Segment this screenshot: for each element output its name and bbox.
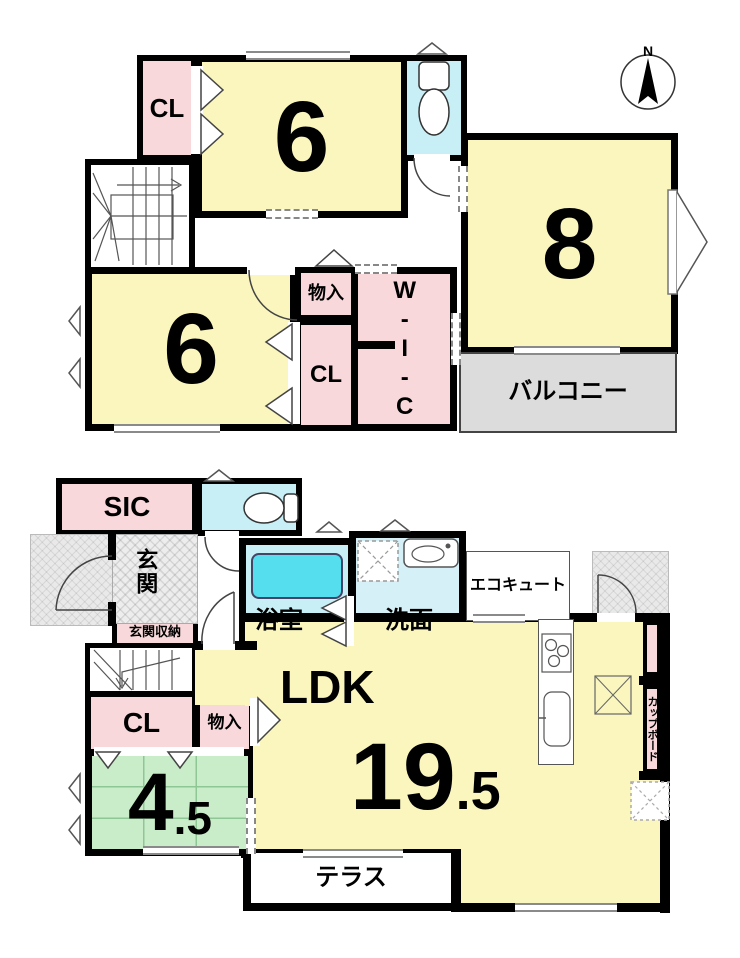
casement-window-icon <box>68 358 81 388</box>
window-room6-top <box>246 51 350 60</box>
closet-1f: CL <box>85 691 198 755</box>
bay-window-icon <box>668 188 710 296</box>
compass-icon: N <box>614 38 684 114</box>
bifold-door-icon <box>314 248 354 268</box>
stove-icon <box>541 633 573 673</box>
storage-2f-label: 物入 <box>308 284 344 304</box>
tatami-room-size-frac: .5 <box>174 798 212 839</box>
bifold-door-icon <box>256 696 282 746</box>
ecocute-unit: エコキュート <box>466 551 570 621</box>
window-room6-left <box>114 424 220 433</box>
bedroom-6-left-size: 6 <box>163 304 219 394</box>
refrigerator-space-icon <box>629 780 671 822</box>
closet-2f-top-label: CL <box>150 94 185 123</box>
window-ldk-terrace <box>303 849 403 858</box>
ldk-size-main: 19 <box>350 735 456 821</box>
door-arc-toilet-1f <box>205 537 239 571</box>
storage-2f: 物入 <box>295 267 357 321</box>
bifold-door-icon <box>318 594 348 648</box>
ldk-label: LDK <box>280 661 375 713</box>
sliding-door-wic-side <box>451 313 461 365</box>
bedroom-8: 8 <box>461 133 678 354</box>
bifold-door-icon <box>264 322 294 426</box>
ldk-room: LDK <box>280 662 375 713</box>
closet-1f-label: CL <box>123 708 160 739</box>
bifold-door-icon <box>201 68 225 154</box>
stairs-lower-symbol <box>92 650 190 690</box>
balcony-label: バルコニー <box>508 379 628 405</box>
ecocute-label: エコキュート <box>470 577 566 595</box>
cupboard-upper <box>643 621 661 676</box>
ldk-size-frac: .5 <box>456 767 501 816</box>
washing-machine-icon <box>356 539 400 583</box>
ldk-size: 19 .5 <box>350 735 501 821</box>
genkan-storage-label: 玄関収納 <box>129 625 181 639</box>
walk-in-closet: W-I-C <box>351 267 457 431</box>
window-ldk-bottom <box>515 903 617 912</box>
sink-icon <box>402 537 460 569</box>
shoe-in-closet-label: SIC <box>104 492 151 523</box>
walk-in-closet-label: W-I-C <box>391 277 417 422</box>
cupboard: カップボード <box>643 685 661 773</box>
casement-window-icon <box>316 521 342 533</box>
bedroom-6-top-size: 6 <box>274 92 330 182</box>
door-arc-room6-left <box>249 270 297 320</box>
casement-window-icon <box>380 519 410 532</box>
bathtub-icon <box>251 553 343 599</box>
sliding-door-room6-top <box>266 209 318 219</box>
genkan-label: 玄関 <box>133 548 157 596</box>
toilet-icon <box>240 486 302 530</box>
sliding-door-room8 <box>458 166 468 212</box>
closet-2f-mid: CL <box>295 319 357 431</box>
window-ldk-top <box>473 614 525 623</box>
kitchen-sink-icon <box>538 690 572 750</box>
window-tatami-bottom <box>143 846 239 855</box>
bedroom-8-size: 8 <box>542 199 598 289</box>
cupboard-label: カップボード <box>646 696 658 762</box>
closet-2f-top: CL <box>137 55 197 161</box>
door-arc-entrance <box>56 552 114 614</box>
compass-north-label: N <box>643 43 653 59</box>
equipment-box-icon <box>594 675 632 715</box>
sliding-door-wic <box>355 264 397 274</box>
casement-window-icon <box>68 306 81 336</box>
stairs-upper-symbol <box>93 167 187 265</box>
casement-window-icon <box>204 469 234 482</box>
washroom-label: 洗面 <box>385 607 433 634</box>
door-arc-toilet-2f <box>414 158 450 196</box>
storage-1f-label: 物入 <box>208 714 242 733</box>
floor-plan-canvas: CL 6 8 バルコニー 6 <box>0 0 740 958</box>
bathroom-label: 浴室 <box>255 607 303 634</box>
closet-2f-mid-label: CL <box>310 362 342 388</box>
terrace-label: テラス <box>315 865 387 891</box>
tatami-room-size-main: 4 <box>128 766 174 840</box>
shoe-in-closet: SIC <box>56 478 198 536</box>
window-room8-balcony <box>514 346 620 355</box>
casement-window-icon <box>68 815 81 845</box>
casement-window-icon <box>417 42 447 55</box>
balcony: バルコニー <box>459 352 677 433</box>
door-arc-entry <box>596 575 640 615</box>
casement-window-icon <box>68 773 81 803</box>
bifold-door-icon <box>94 750 254 770</box>
door-arc-hall-ldk <box>202 592 236 644</box>
bedroom-6-top: 6 <box>195 55 408 218</box>
toilet-icon <box>411 60 457 144</box>
terrace: テラス <box>243 853 459 911</box>
sliding-partition-tatami <box>246 798 256 854</box>
